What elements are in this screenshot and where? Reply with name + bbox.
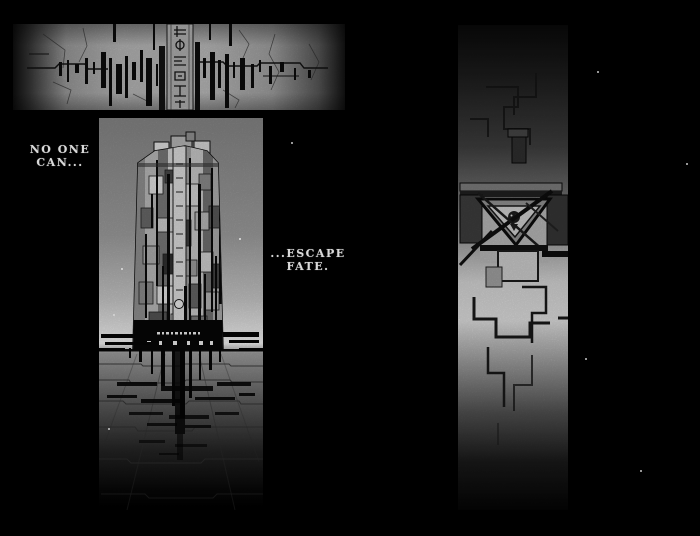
- caption-line: ...ESCAPE: [268, 247, 348, 260]
- film-speck: [597, 71, 599, 73]
- caption-line: FATE.: [268, 260, 348, 273]
- caption-no-one-can: NO ONE CAN...: [20, 143, 100, 169]
- film-speck: [585, 358, 587, 360]
- film-speck: [108, 428, 110, 430]
- caption-line: NO ONE: [20, 143, 100, 156]
- panel-seal-wall: [458, 25, 568, 510]
- film-speck: [686, 163, 688, 165]
- film-speck: [640, 470, 642, 472]
- film-speck: [291, 142, 293, 144]
- panel-monolith-tower: [99, 118, 263, 510]
- panel-cracked-wall: [13, 24, 345, 110]
- manga-page: NO ONE CAN... ...ESCAPE FATE.: [0, 0, 700, 536]
- caption-line: CAN...: [20, 156, 100, 169]
- caption-escape-fate: ...ESCAPE FATE.: [268, 247, 348, 273]
